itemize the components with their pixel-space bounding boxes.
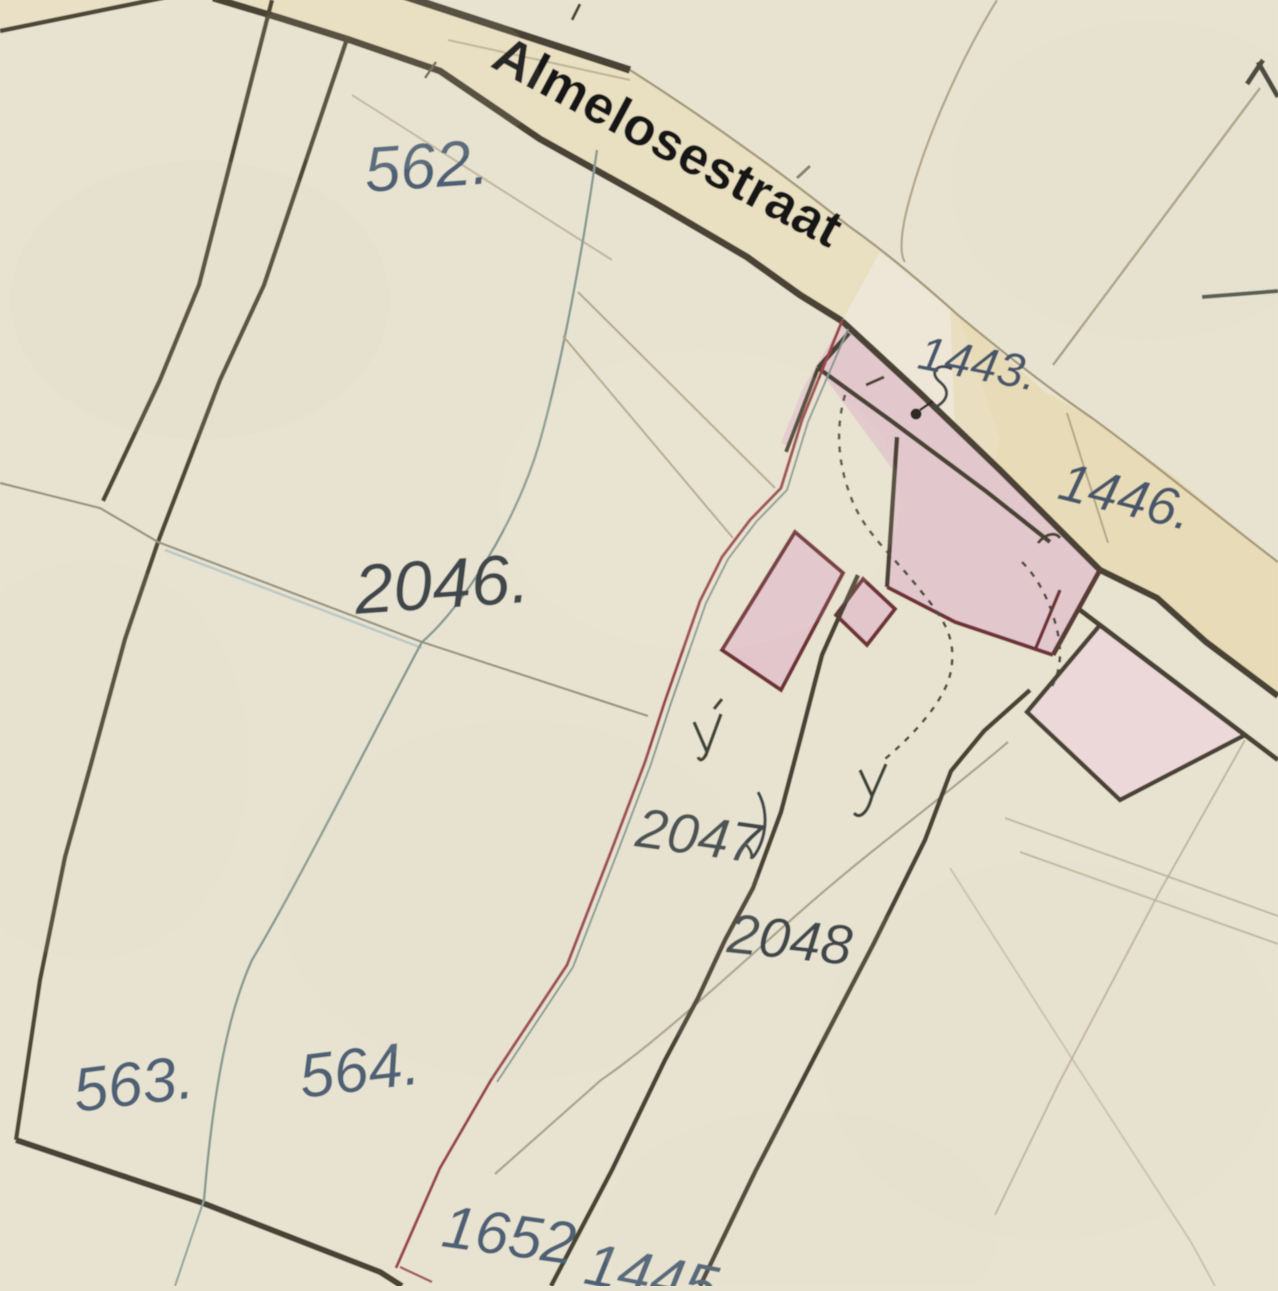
svg-text:2046.: 2046. [351, 539, 532, 629]
svg-text:563.: 563. [69, 1043, 197, 1126]
